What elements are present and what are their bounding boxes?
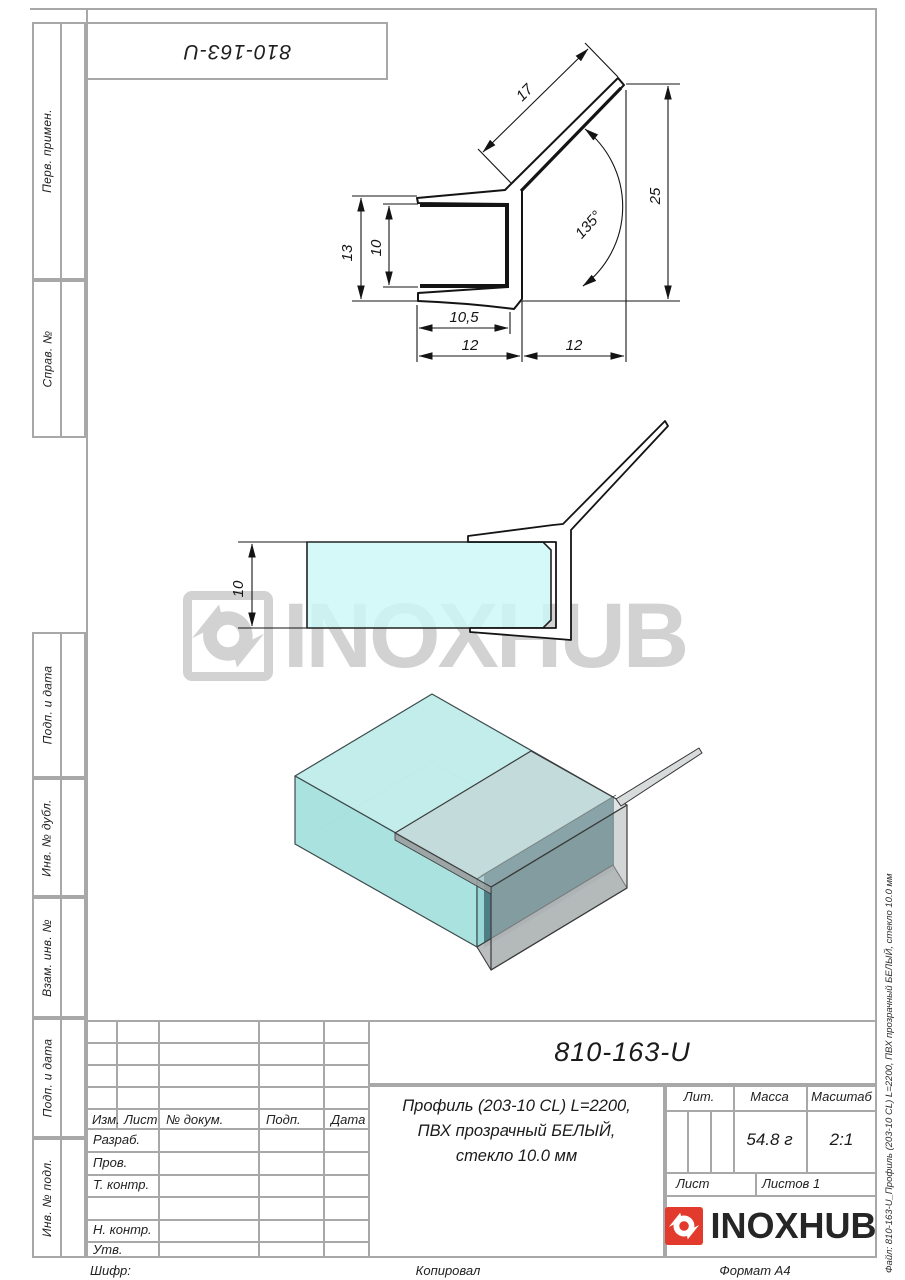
dim-10-5: 10,5 bbox=[449, 309, 479, 326]
section-view: 13 10 10,5 12 12 25 17 135° bbox=[339, 43, 680, 362]
dim-12-left: 12 bbox=[462, 337, 479, 354]
drawing-views: 13 10 10,5 12 12 25 17 135° 10 bbox=[0, 0, 905, 1280]
drawing-sheet: INOXHUB Перв. примен. Справ. № Подп. и д… bbox=[0, 0, 905, 1280]
profile-glass-contact-lines bbox=[420, 205, 507, 286]
dim-13: 13 bbox=[339, 244, 356, 261]
dim-10: 10 bbox=[368, 239, 385, 256]
dim-12-right: 12 bbox=[566, 337, 583, 354]
iso-view bbox=[295, 694, 702, 970]
profile-arm-inner-line bbox=[521, 88, 621, 191]
side-view: 10 bbox=[230, 421, 668, 640]
dim-glass-10: 10 bbox=[230, 580, 247, 597]
dim-17: 17 bbox=[513, 80, 537, 104]
channel-fin bbox=[616, 748, 702, 806]
glass-panel bbox=[307, 542, 551, 628]
dim-25: 25 bbox=[647, 187, 664, 205]
dim-135: 135° bbox=[572, 208, 605, 242]
profile-section-outline bbox=[417, 78, 624, 309]
